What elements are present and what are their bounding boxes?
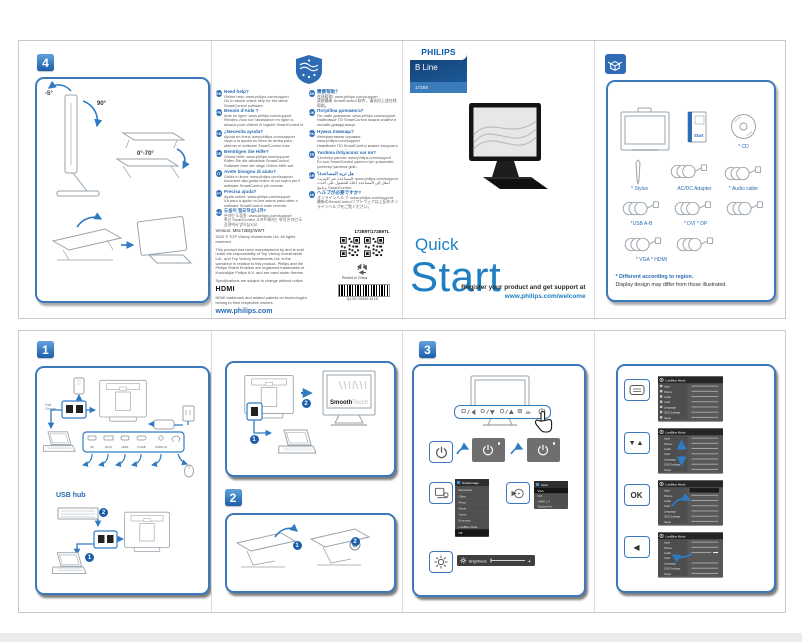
lang-badge: ES (216, 130, 223, 137)
svg-text:DisplayPort: DisplayPort (538, 504, 553, 508)
help-entry: ZH需要帮助？在线帮助: www.philips.com/support获取最新… (309, 89, 399, 108)
svg-text:Language: Language (664, 509, 676, 513)
svg-text:VGA: VGA (538, 489, 544, 493)
accessory-monitor (620, 108, 670, 154)
osd-navigation-box: LowBlue Mode InputPictureAudioColorLangu… (616, 364, 776, 593)
svg-text:OSD Settings: OSD Settings (664, 463, 681, 467)
region-note: * Different according to region. (616, 274, 694, 280)
power-icon (482, 444, 494, 456)
tilt-angle-range: 0°-70° (137, 151, 154, 157)
svg-text:Setup: Setup (664, 520, 671, 524)
help-entry: DEBenötigen Sie Hilfe?Online-Hilfe: www.… (216, 149, 305, 169)
connection-diagram: Fast Charger (37, 368, 208, 593)
svg-text:Setup: Setup (664, 572, 671, 576)
lang-badge: RU (309, 130, 316, 137)
back-key-label: ◀ (633, 543, 639, 552)
svg-text:EasyRead: EasyRead (459, 488, 473, 492)
lang-badge: AR (309, 172, 316, 179)
register-note: Register your product and get support at… (461, 284, 585, 301)
step-dot-2: 2 (302, 399, 311, 408)
osd-basics-box: OK (412, 364, 586, 597)
connection-diagram-box: Fast Charger (35, 366, 210, 595)
quick-title: Quick (415, 235, 458, 255)
svg-text:OK: OK (526, 411, 532, 415)
svg-text:Audio: Audio (664, 447, 671, 451)
sheet-front: 4 (18, 40, 786, 319)
ok-key-label: OK (631, 491, 643, 500)
step-dot-2: 2 (99, 508, 108, 517)
menu-key-icon (629, 384, 645, 396)
smoothtouch-light: Touch (352, 400, 368, 406)
help-entry: RUНужна помощь?Интерактивная справка: ww… (309, 129, 399, 150)
product-photo-monitor (463, 101, 555, 193)
accessories-box: Start * CD * Stylus AC/DC Adapter * Audi… (606, 80, 776, 302)
touch-setup-box: Smooth Touch 1 2 (225, 361, 396, 477)
svg-text:Color: Color (664, 556, 670, 560)
svg-text:OSD Settings: OSD Settings (664, 411, 681, 415)
step-badge-2: 2 (225, 489, 242, 506)
smartimage-icon (434, 486, 449, 500)
step-badge-3: 3 (419, 341, 436, 358)
smartimage-key (429, 482, 453, 504)
port-label-dvi: DVI-D (105, 445, 112, 449)
help-column-left: ENNeed help?Online help: www.philips.com… (216, 89, 305, 227)
label-cd: * CD (738, 144, 749, 150)
port-label-dsub: D-SUB (137, 445, 145, 449)
panel-cover: PHILIPS B Line 172B9 Quick Start Registe (402, 41, 594, 318)
svg-text:DVI: DVI (538, 494, 543, 498)
print-info-block: 172B9T/172B9TL Printed in China Q40G70M5… (316, 229, 390, 234)
philips-url: www.philips.com (216, 308, 308, 316)
svg-text:Photo: Photo (459, 500, 467, 504)
barcode (338, 284, 390, 297)
panel-step2: Smooth Touch 1 2 2 (211, 331, 403, 612)
lang-badge: FR (216, 109, 223, 116)
step-dot-2: 2 (351, 537, 360, 546)
help-entry: KO도움이 필요하십니까?온라인 도움말: www.philips.com/su… (216, 208, 305, 227)
power-led (498, 442, 501, 445)
svg-text:+: + (528, 559, 531, 565)
monitor-front-illustration (469, 374, 531, 434)
smartimage-osd-menu: SmartImage EasyRead Office Photo Movie G… (455, 479, 489, 537)
qr-code (340, 237, 360, 257)
ok-key: OK (624, 484, 650, 506)
panel-help: ENNeed help?Online help: www.philips.com… (211, 41, 403, 318)
updown-keys-label: ▼▲ (629, 440, 645, 447)
svg-text:SmartImage: SmartImage (462, 481, 479, 485)
lang-badge: PT (216, 190, 223, 197)
quick-start-guide-scan: 4 (0, 0, 802, 642)
help-entry: ENNeed help?Online help: www.philips.com… (216, 89, 305, 108)
help-entry: TRYardıma ihtiyacınız var mı?Çevrimiçi y… (309, 150, 399, 171)
help-entry: UKПотрібна допомога?Он-лайн допомога: ww… (309, 108, 399, 129)
recycle-icon (354, 261, 370, 274)
svg-text:Color: Color (664, 400, 670, 404)
step-dot-1: 1 (85, 553, 94, 562)
svg-text:LowBlue Mode: LowBlue Mode (459, 525, 479, 529)
help-entry: ES¿Necesita ayuda?Ayuda en línea: www.ph… (216, 129, 305, 149)
svg-text:Economy: Economy (459, 519, 472, 523)
port-label-audio: AUDIO IN (155, 445, 167, 449)
help-entry: ITAvete bisogno di aiuto?Guida in linea:… (216, 169, 305, 189)
panel-osd-navigation: LowBlue Mode InputPictureAudioColorLangu… (594, 331, 786, 612)
help-entry: PTPrecisa ajuda?Ajuda online: www.philip… (216, 189, 305, 208)
accessory-cd (730, 113, 757, 140)
stand-adjust-diagram (227, 515, 394, 591)
monitor-tilt-illustration: -5° 90° 0°-70° (37, 79, 208, 301)
version-text: Version: M6172BQ/WWT (216, 228, 308, 233)
lang-badge: IT (216, 170, 223, 177)
accessory-stylus (634, 159, 642, 185)
brightness-key (429, 551, 453, 573)
power-panel-off (472, 438, 505, 462)
accessory-cable (722, 197, 764, 220)
stand-adjust-box: 1 2 (225, 513, 396, 593)
panel-step3: 3 OK (402, 331, 594, 612)
svg-text:Input: Input (664, 385, 670, 389)
next-arrow-icon (510, 445, 524, 456)
svg-text:Picture: Picture (664, 494, 673, 498)
unboxing-icon (605, 54, 626, 74)
svg-text:Audio: Audio (664, 499, 671, 503)
booklet-start-label: Start (694, 133, 704, 138)
osd-screen: LowBlue Mode InputPictureAudioColorLangu… (658, 480, 723, 526)
label-usb-ab: *USB A-B (631, 221, 653, 227)
svg-text:Audio: Audio (664, 551, 671, 555)
help-column-right: ZH需要帮助？在线帮助: www.philips.com/support获取最新… (309, 89, 399, 209)
power-led (553, 442, 556, 445)
port-label-hdmi: HDMI (122, 445, 129, 449)
power-panel-on (527, 438, 560, 462)
label-vga-hdmi: * VGA * HDMI (636, 257, 667, 263)
svg-text:LowBlue Mode: LowBlue Mode (665, 430, 685, 434)
step-badge-1: 1 (37, 341, 54, 358)
panel-accessories: Start * CD * Stylus AC/DC Adapter * Audi… (594, 41, 786, 318)
svg-text:LowBlue Mode: LowBlue Mode (665, 378, 685, 382)
svg-text:Language: Language (664, 457, 676, 461)
touch-setup-diagram: Smooth Touch (227, 363, 394, 475)
svg-text:Language: Language (664, 561, 676, 565)
usb-hub-label: USB hub (56, 492, 86, 499)
panel-step1: 1 Fast Charger (19, 331, 211, 612)
lang-badge: TR (309, 151, 316, 158)
step-badge-4: 4 (37, 54, 54, 71)
philips-shield-logo (294, 54, 324, 85)
lang-badge: UK (309, 109, 316, 116)
help-entry: JAヘルプが必要ですか?オンラインヘルプ: www.philips.com/su… (309, 190, 399, 209)
osd-screen: LowBlue Mode InputPictureAudioColorLangu… (658, 376, 723, 422)
svg-text:OSD Settings: OSD Settings (664, 515, 681, 519)
svg-text:Setup: Setup (664, 468, 671, 472)
input-osd-menu: Input VGA DVI HDMI 1.4 DisplayPort (534, 481, 568, 509)
brightness-slider-bar: Brightness + (457, 555, 535, 566)
input-select-icon (511, 487, 525, 500)
lang-badge: DE (216, 150, 223, 157)
barcode-number: Q40G70M5E101D (330, 297, 396, 301)
design-note: Display design may differ from those ill… (616, 282, 727, 288)
menu-key (624, 379, 650, 401)
lang-badge: KO (216, 209, 223, 216)
lang-badge: EN (216, 90, 223, 97)
svg-text:Input: Input (541, 483, 548, 487)
svg-text:Input: Input (664, 489, 670, 493)
accessory-hdmi-cable (672, 233, 714, 256)
svg-text:Audio: Audio (664, 395, 671, 399)
tilt-angle-90: 90° (97, 101, 107, 107)
port-label-dp: DP (90, 445, 94, 449)
smoothtouch-bold: Smooth (330, 400, 353, 406)
page-bottom-strip (0, 633, 802, 642)
accessory-dvi-dp-cable (670, 197, 712, 220)
svg-text:Office: Office (459, 494, 467, 498)
model-number: 172B9T/172B9TL (316, 229, 390, 234)
printed-in-china: Printed in China (330, 276, 380, 280)
legal-text: This product has been manufactured by an… (216, 248, 308, 276)
copyright-text: 2020 © TOP Victory Investments Ltd. All … (216, 235, 308, 244)
cover-model-label: 172B9 (410, 82, 467, 93)
help-entry: FRBesoin d'Aide ?Aide en ligne: www.phil… (216, 108, 305, 129)
svg-text:Brightness: Brightness (469, 560, 487, 564)
svg-text:Game: Game (459, 513, 467, 517)
legal-block: Version: M6172BQ/WWT 2020 © TOP Victory … (216, 228, 308, 317)
svg-text:Picture: Picture (664, 442, 673, 446)
svg-text:LowBlue Mode: LowBlue Mode (665, 482, 685, 486)
philips-wordmark: PHILIPS (421, 47, 455, 57)
tilt-illustration-box: -5° 90° 0°-70° (35, 77, 210, 303)
osd-screen: LowBlue Mode InputPictureAudioColorLangu… (658, 428, 723, 474)
tilt-angle-minus5: -5° (45, 91, 53, 97)
input-select-key (506, 482, 530, 504)
power-key (429, 441, 453, 463)
panel-step4: 4 (19, 41, 211, 318)
svg-text:HDMI 1.4: HDMI 1.4 (538, 499, 551, 503)
register-line1: Register your product and get support at (461, 284, 585, 293)
lang-badge: JA (309, 191, 316, 198)
svg-text:OSD Settings: OSD Settings (664, 567, 681, 571)
specs-note: Specifications are subject to change wit… (216, 279, 308, 284)
label-audio-cable: * Audio cable (729, 186, 758, 192)
svg-text:Setup: Setup (664, 416, 671, 420)
step-dot-1: 1 (250, 435, 259, 444)
label-dvi-dp: * DVI * DP (684, 221, 707, 227)
osd-screen: LowBlue Mode InputPictureAudioColorLangu… (658, 532, 723, 578)
svg-text:LowBlue Mode: LowBlue Mode (665, 534, 685, 538)
svg-text:Input: Input (664, 437, 670, 441)
hdmi-note: HDMI trademark and related patents on te… (216, 296, 308, 305)
updown-keys: ▼▲ (624, 432, 650, 454)
svg-text:Color: Color (664, 504, 670, 508)
svg-text:Picture: Picture (664, 390, 673, 394)
svg-text:Language: Language (664, 405, 676, 409)
svg-text:Input: Input (664, 541, 670, 545)
svg-text:Color: Color (664, 452, 670, 456)
label-adapter: AC/DC Adapter (677, 186, 711, 192)
hdmi-logo: HDMI (216, 286, 308, 294)
accessory-vga-cable (620, 233, 662, 256)
next-arrow-icon (456, 445, 470, 456)
philips-wordmark-banner: PHILIPS (410, 44, 467, 60)
help-entry: ARهل تريد المساعدة؟المساعدة عبر الإنترنت… (309, 171, 399, 190)
accessory-quickstart-booklet: Start (687, 111, 707, 143)
sheet-back: 1 Fast Charger (18, 330, 786, 613)
register-url: www.philips.com/welcome (461, 293, 585, 302)
svg-text:Movie: Movie (459, 507, 467, 511)
power-icon (537, 444, 549, 456)
accessory-usb-cable (618, 197, 660, 220)
pointing-hand-icon (532, 410, 556, 436)
lang-badge: ZH (309, 90, 316, 97)
step-dot-1: 1 (293, 541, 302, 550)
bline-plate: PHILIPS B Line 172B9 (410, 44, 467, 93)
label-stylus: * Stylus (631, 186, 648, 192)
back-key: ◀ (624, 536, 650, 558)
brightness-icon (434, 555, 448, 569)
svg-text:Picture: Picture (664, 546, 673, 550)
power-icon (435, 446, 448, 459)
accessory-adapter-cable (666, 160, 708, 183)
qr-code (364, 237, 384, 257)
series-label: B Line (410, 60, 467, 72)
svg-text:Off: Off (459, 531, 463, 535)
accessory-audio-cable (720, 162, 762, 185)
